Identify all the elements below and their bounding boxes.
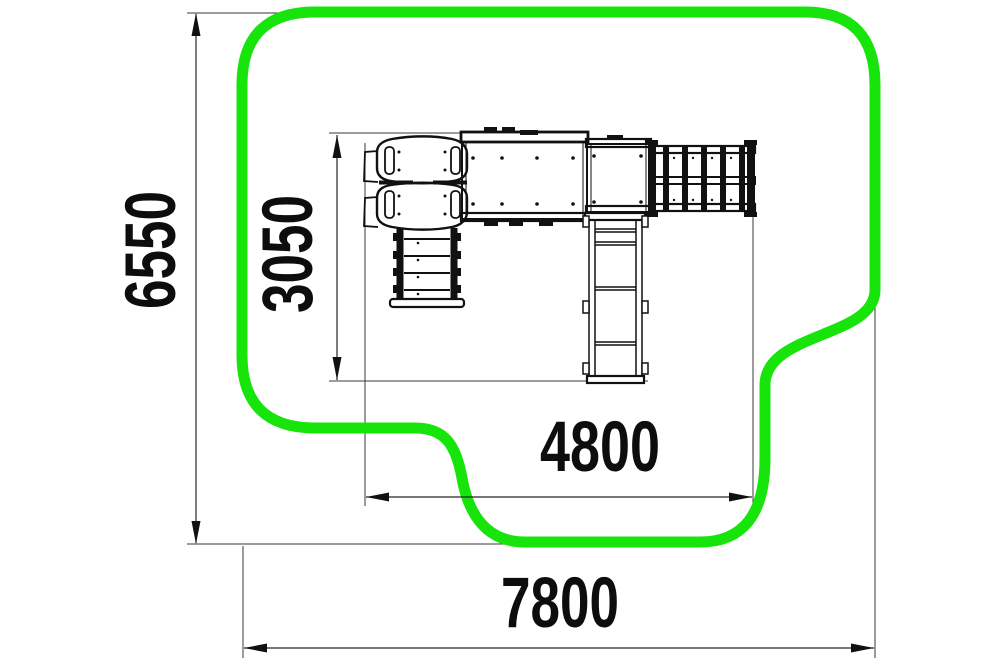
seat-slot [451, 191, 460, 218]
arrow-left-icon [244, 644, 267, 653]
wall-tab [484, 221, 498, 226]
technical-drawing-sheet: 6550 3050 4800 7800 [0, 0, 1000, 666]
wall-tab [520, 130, 538, 135]
seat-divider-left [379, 181, 413, 185]
slide-seat-bottom [377, 183, 467, 230]
seat-slot [451, 147, 460, 174]
rail-clamps [583, 216, 648, 374]
deck-bolts [471, 156, 575, 206]
ladder-top-bar [585, 213, 645, 220]
dimension-7800: 7800 [244, 564, 874, 653]
wall-tab [509, 221, 523, 226]
deck-bolts [592, 154, 643, 204]
ladder-rungs [595, 229, 636, 345]
slide-module [364, 136, 467, 229]
arrow-right-icon [851, 644, 874, 653]
playground-equipment-top-view [364, 127, 757, 383]
playground-plan-svg: 6550 3050 4800 7800 [0, 0, 1000, 666]
ladder-end-post [648, 142, 656, 215]
dimension-label-6550: 6550 [112, 191, 191, 309]
ladder-base [390, 299, 464, 307]
wall-tab [484, 127, 497, 133]
wall-tab [502, 127, 515, 133]
dimension-label-7800: 7800 [501, 564, 619, 643]
ladder-base [587, 376, 644, 383]
arrow-right-icon [729, 493, 752, 502]
arrow-down-icon [192, 521, 201, 544]
right-ladder [583, 213, 648, 383]
post-cap [645, 140, 658, 145]
seat-slot [385, 147, 394, 174]
post-cap [744, 140, 757, 145]
wall-tab [539, 221, 553, 226]
deck-floor [462, 142, 587, 219]
dimension-4800: 4800 [366, 408, 752, 502]
post-cap [744, 212, 757, 217]
arrow-down-icon [333, 357, 342, 380]
dimension-label-3050: 3050 [249, 195, 328, 313]
small-deck [586, 135, 651, 213]
horizontal-ladder [645, 140, 757, 217]
dimension-3050: 3050 [249, 135, 342, 380]
extension-lines [187, 13, 875, 658]
slide-seat-top [377, 136, 467, 183]
arrow-left-icon [366, 493, 389, 502]
dimension-label-4800: 4800 [540, 408, 660, 487]
left-ladder [390, 228, 464, 307]
ladder-rungs [663, 146, 745, 211]
ladder-end-post [747, 142, 755, 215]
dimension-6550: 6550 [112, 13, 201, 544]
main-deck [461, 127, 588, 226]
seat-slot [385, 191, 394, 218]
arrow-up-icon [192, 13, 201, 36]
wall-tab [607, 135, 623, 140]
arrow-up-icon [333, 135, 342, 158]
